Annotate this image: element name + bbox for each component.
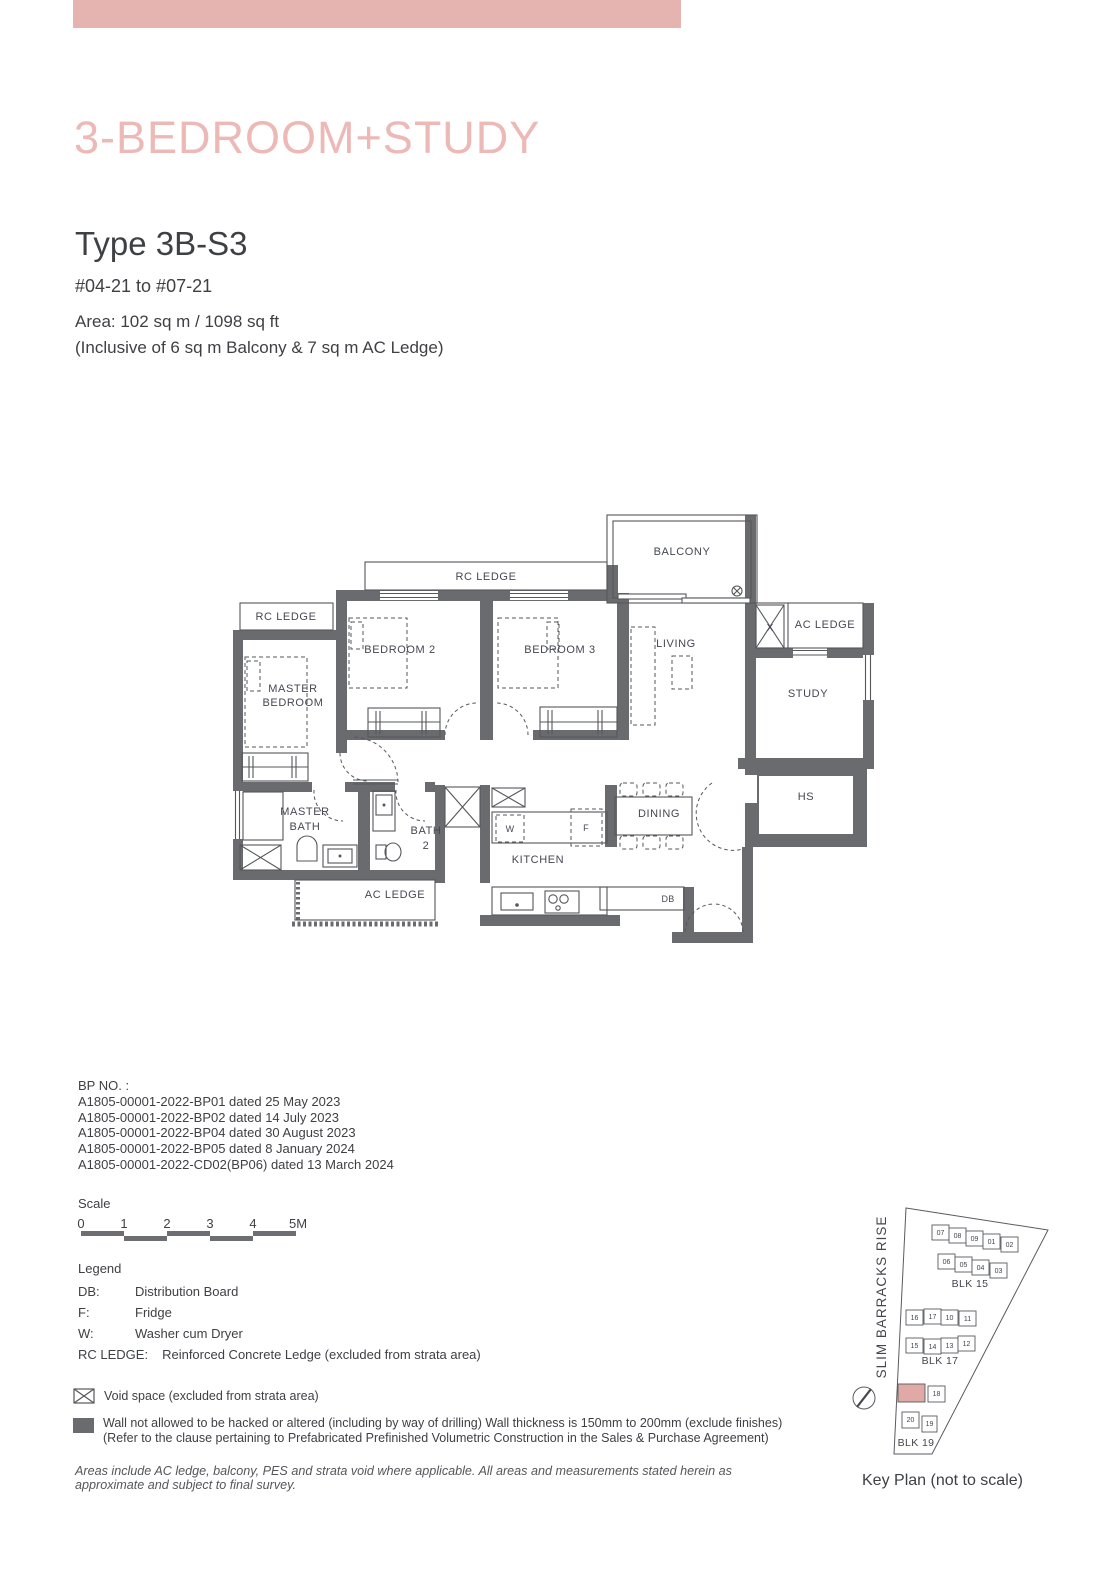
room-label-dining: DINING (638, 808, 680, 820)
legend-row-db: DB: Distribution Board (78, 1284, 481, 1305)
room-label-hs: HS (798, 791, 814, 803)
keyplan-highlighted-unit (898, 1384, 925, 1402)
legend-row-rc-ledge: RC LEDGE: Reinforced Concrete Ledge (exc… (78, 1347, 481, 1368)
footer-disclaimer: Areas include AC ledge, balcony, PES and… (75, 1464, 795, 1492)
legend-row-f: F: Fridge (78, 1305, 481, 1326)
legend-value: Reinforced Concrete Ledge (excluded from… (162, 1347, 481, 1362)
svg-text:11: 11 (964, 1316, 971, 1323)
scale-tick: 5M (289, 1216, 307, 1231)
scale-heading: Scale (78, 1196, 111, 1211)
keyplan-blk15: 07 08 09 01 02 06 05 04 03 BLK 15 (932, 1225, 1018, 1290)
bp-entry: A1805-00001-2022-CD02(BP06) dated 13 Mar… (78, 1157, 394, 1173)
scale-tick: 1 (120, 1216, 127, 1231)
legend-key: F: (78, 1305, 135, 1320)
wall-note-line1: Wall not allowed to be hacked or altered… (103, 1416, 782, 1431)
svg-text:01: 01 (988, 1239, 996, 1246)
keyplan-street-label: SLIM BARRACKS RISE (874, 1216, 889, 1379)
room-label-ac-ledge-bottom: AC LEDGE (365, 889, 425, 901)
room-label-bath2-1: BATH (411, 825, 442, 837)
legend-row-w: W: Washer cum Dryer (78, 1326, 481, 1347)
header-accent-bar (73, 0, 681, 28)
svg-text:17: 17 (929, 1314, 937, 1321)
floor-range: #04-21 to #07-21 (75, 276, 212, 297)
keyplan-caption: Key Plan (not to scale) (862, 1472, 1023, 1490)
void-note-text: Void space (excluded from strata area) (104, 1389, 319, 1403)
wall-note-row: Wall not allowed to be hacked or altered… (73, 1416, 782, 1445)
bp-heading: BP NO. : (78, 1078, 394, 1094)
bp-number-block: BP NO. : A1805-00001-2022-BP01 dated 25 … (78, 1078, 394, 1173)
bp-entry: A1805-00001-2022-BP04 dated 30 August 20… (78, 1125, 394, 1141)
blk17-label: BLK 17 (922, 1355, 959, 1367)
room-label-bedroom2: BEDROOM 2 (364, 644, 435, 656)
legend-key: W: (78, 1326, 135, 1341)
svg-text:20: 20 (907, 1417, 915, 1424)
keyplan-svg: SLIM BARRACKS RISE 07 08 09 01 02 06 05 … (848, 1192, 1097, 1492)
void-space-icon (73, 1388, 95, 1404)
svg-text:16: 16 (911, 1315, 919, 1322)
void-note-row: Void space (excluded from strata area) (73, 1388, 319, 1404)
scale-ticks: 0 1 2 3 4 5M (81, 1216, 321, 1230)
blk15-label: BLK 15 (952, 1278, 989, 1290)
room-label-masterbath-2: BATH (290, 821, 321, 833)
washer-label: W (506, 824, 515, 834)
area-line1: Area: 102 sq m / 1098 sq ft (75, 312, 279, 332)
legend-value: Distribution Board (135, 1284, 238, 1299)
svg-text:14: 14 (929, 1344, 937, 1351)
room-label-bath2-2: 2 (423, 840, 430, 852)
floorplan-walls (233, 515, 874, 943)
page-title: 3-BEDROOM+STUDY (74, 112, 540, 164)
svg-text:04: 04 (977, 1265, 985, 1272)
room-label-living: LIVING (656, 638, 696, 650)
db-label: DB (661, 894, 674, 904)
room-label-rc-ledge-top: RC LEDGE (455, 571, 516, 583)
room-label-master-2: BEDROOM (262, 697, 323, 709)
wardrobes (242, 707, 617, 781)
room-label-kitchen: KITCHEN (512, 854, 564, 866)
room-label-masterbath-1: MASTER (280, 806, 329, 818)
brochure-page: 3-BEDROOM+STUDY Type 3B-S3 #04-21 to #07… (0, 0, 1097, 1585)
fridge-label: F (583, 823, 589, 833)
room-label-master-1: MASTER (268, 683, 317, 695)
svg-text:02: 02 (1006, 1242, 1014, 1249)
bp-entry: A1805-00001-2022-BP05 dated 8 January 20… (78, 1141, 394, 1157)
keyplan-blk17: 16 17 10 11 15 14 13 12 BLK 17 (906, 1309, 976, 1367)
svg-text:05: 05 (960, 1262, 968, 1269)
bp-entry: A1805-00001-2022-BP01 dated 25 May 2023 (78, 1094, 394, 1110)
svg-text:09: 09 (971, 1236, 979, 1243)
svg-text:06: 06 (943, 1259, 951, 1266)
scale-tick: 3 (206, 1216, 213, 1231)
bp-entry: A1805-00001-2022-BP02 dated 14 July 2023 (78, 1110, 394, 1126)
area-line2: (Inclusive of 6 sq m Balcony & 7 sq m AC… (75, 338, 444, 358)
legend-value: Fridge (135, 1305, 172, 1320)
floorplan-svg: BALCONY RC LEDGE RC LEDGE BEDROOM 2 BEDR… (230, 495, 890, 965)
svg-text:15: 15 (911, 1343, 919, 1350)
svg-text:03: 03 (995, 1268, 1003, 1275)
room-label-study: STUDY (788, 688, 828, 700)
svg-text:07: 07 (937, 1230, 945, 1237)
keyplan-blk19: 18 20 19 BLK 19 (898, 1384, 945, 1449)
void-x-label: X (767, 623, 774, 634)
svg-text:18: 18 (933, 1391, 941, 1398)
svg-text:08: 08 (954, 1233, 962, 1240)
room-label-balcony: BALCONY (654, 546, 711, 558)
room-label-bedroom3: BEDROOM 3 (524, 644, 595, 656)
floorplan-windows (233, 591, 874, 839)
svg-text:13: 13 (946, 1343, 954, 1350)
compass-icon (853, 1387, 875, 1409)
scale-tick: 2 (163, 1216, 170, 1231)
scale-tick: 4 (249, 1216, 256, 1231)
unit-type-title: Type 3B-S3 (75, 225, 247, 263)
blk19-label: BLK 19 (898, 1437, 935, 1449)
svg-text:19: 19 (926, 1421, 934, 1428)
room-label-rc-ledge-left: RC LEDGE (255, 611, 316, 623)
scale-tick: 0 (77, 1216, 84, 1231)
svg-text:10: 10 (946, 1315, 954, 1322)
scale-bar (81, 1231, 296, 1241)
wall-swatch-icon (73, 1418, 94, 1433)
legend-value: Washer cum Dryer (135, 1326, 243, 1341)
svg-text:12: 12 (963, 1341, 971, 1348)
legend-key: DB: (78, 1284, 135, 1299)
legend-rows: DB: Distribution Board F: Fridge W: Wash… (78, 1284, 481, 1368)
wall-note-line2: (Refer to the clause pertaining to Prefa… (103, 1431, 782, 1446)
room-label-ac-ledge-right: AC LEDGE (795, 619, 855, 631)
legend-key: RC LEDGE: (78, 1347, 162, 1362)
legend-heading: Legend (78, 1261, 121, 1276)
